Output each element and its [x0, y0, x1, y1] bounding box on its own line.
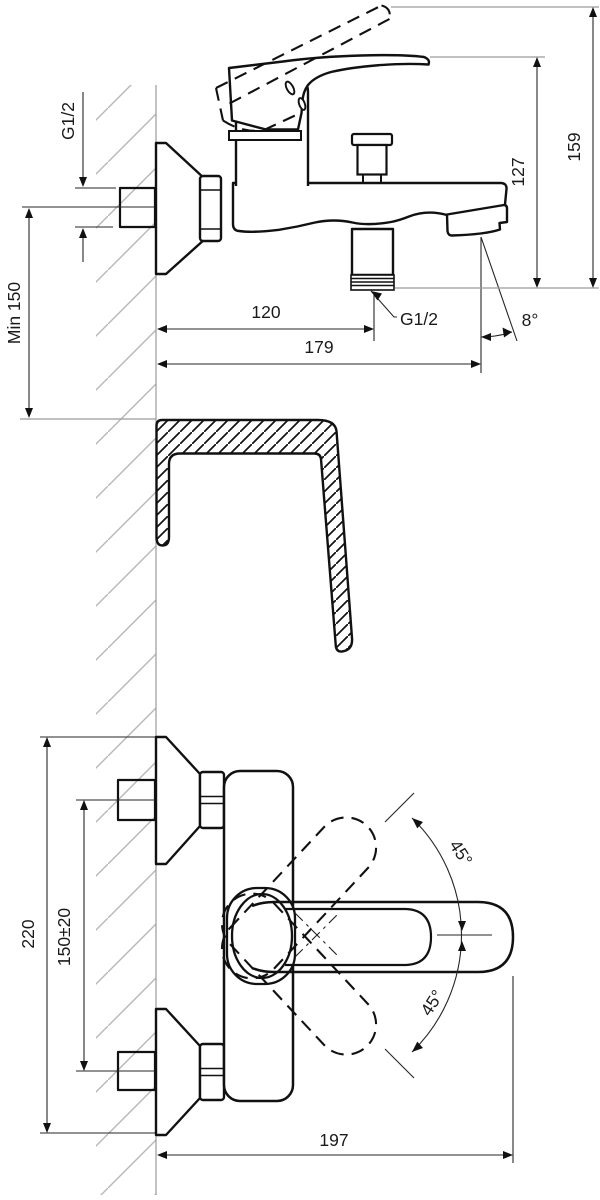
connection-nut-bottom — [200, 1044, 224, 1100]
overall-height-label: 220 — [18, 919, 38, 948]
connection-nut — [200, 176, 221, 241]
outlet-thread — [351, 275, 394, 290]
wall-hatching — [20, 85, 156, 1195]
technical-drawing-page: G1/2 Min 150 120 179 G1/2 — [0, 0, 600, 1200]
outlet-offset-label: 120 — [251, 302, 280, 322]
dimension-159: 159 — [391, 7, 599, 288]
connection-nut-top — [200, 772, 224, 828]
inlet-thread-label: G1/2 — [58, 102, 78, 140]
dimension-127: 127 — [430, 57, 545, 288]
wall-escutcheon-bottom — [156, 1009, 200, 1135]
diverter-knob — [352, 134, 392, 182]
dimension-angle-45: 45° 45° — [385, 793, 492, 1078]
handle-front-inner-line — [285, 909, 431, 965]
overall-width-label: 197 — [319, 1130, 348, 1150]
spout-reach-label: 179 — [304, 337, 333, 357]
total-height-label: 159 — [564, 132, 584, 161]
handle-swing-up-label: 45° — [445, 836, 476, 869]
body-height-label: 127 — [508, 157, 528, 186]
cartridge-ring — [229, 131, 301, 140]
section-profile — [157, 420, 353, 652]
inlet-spacing-label: 150±20 — [54, 908, 74, 967]
wall-escutcheon — [156, 143, 205, 274]
front-view: 220 150±20 45° 45° 197 — [18, 737, 513, 1163]
min-height-label: Min 150 — [4, 282, 24, 345]
dimension-outlet-thread-leader: G1/2 — [371, 291, 438, 329]
outlet-pipe — [352, 229, 393, 275]
dimension-179: 179 — [157, 337, 481, 368]
dimension-angle-8: 8° — [481, 237, 538, 373]
outlet-thread-label: G1/2 — [400, 309, 438, 329]
wall-hatch-band — [96, 85, 156, 1195]
wall-escutcheon-top — [156, 737, 200, 864]
spout-section-view — [157, 420, 353, 652]
side-view: G1/2 Min 150 120 179 G1/2 — [4, 6, 599, 419]
spout-angle-label: 8° — [522, 310, 539, 330]
handle-swing-down-label: 45° — [416, 986, 447, 1019]
dimension-120: 120 — [157, 292, 374, 341]
